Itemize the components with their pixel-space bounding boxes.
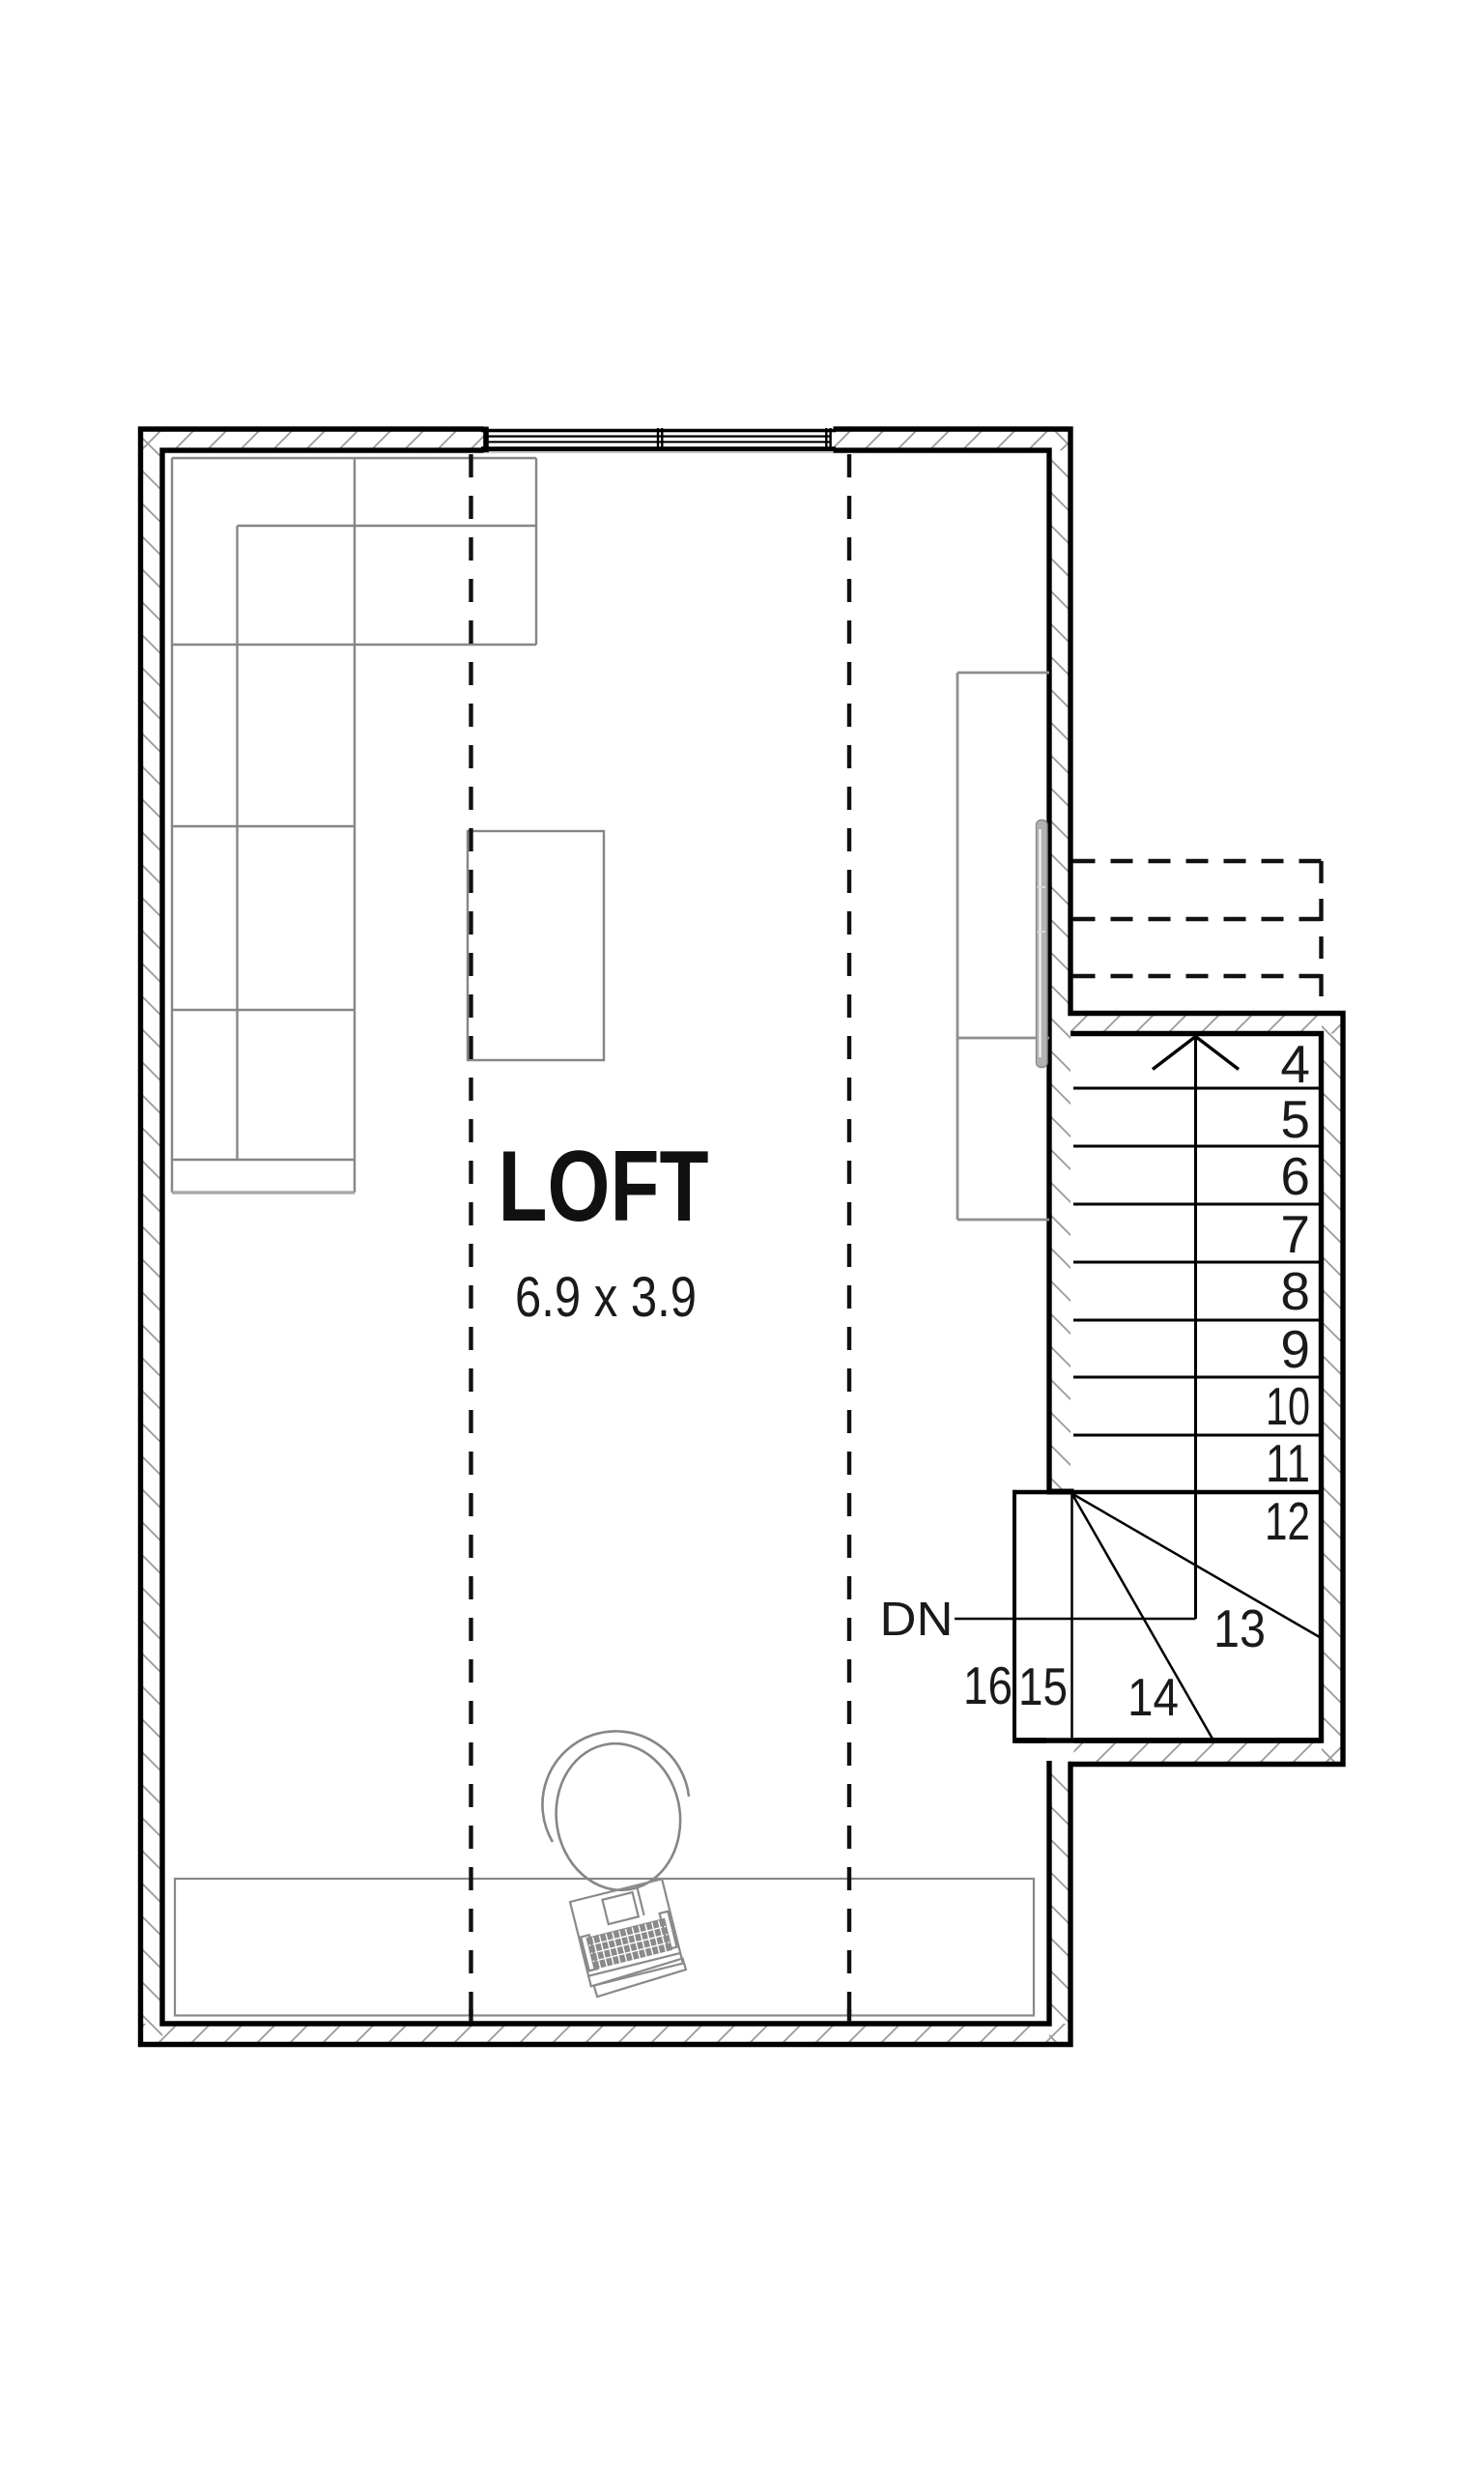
svg-text:4: 4: [1280, 1034, 1310, 1094]
svg-text:7: 7: [1280, 1204, 1310, 1264]
svg-text:6.9 x 3.9: 6.9 x 3.9: [515, 1266, 697, 1329]
svg-text:13: 13: [1213, 1598, 1266, 1658]
svg-text:LOFT: LOFT: [499, 1131, 709, 1243]
svg-text:16: 16: [963, 1655, 1013, 1715]
svg-text:15: 15: [1018, 1656, 1068, 1716]
svg-text:10: 10: [1266, 1376, 1310, 1436]
svg-text:DN: DN: [880, 1593, 954, 1646]
svg-text:12: 12: [1265, 1491, 1310, 1551]
svg-text:5: 5: [1280, 1089, 1310, 1149]
svg-text:8: 8: [1280, 1261, 1310, 1321]
svg-text:6: 6: [1280, 1146, 1310, 1206]
svg-text:9: 9: [1280, 1319, 1310, 1379]
svg-text:14: 14: [1127, 1667, 1179, 1727]
svg-text:11: 11: [1266, 1433, 1310, 1493]
